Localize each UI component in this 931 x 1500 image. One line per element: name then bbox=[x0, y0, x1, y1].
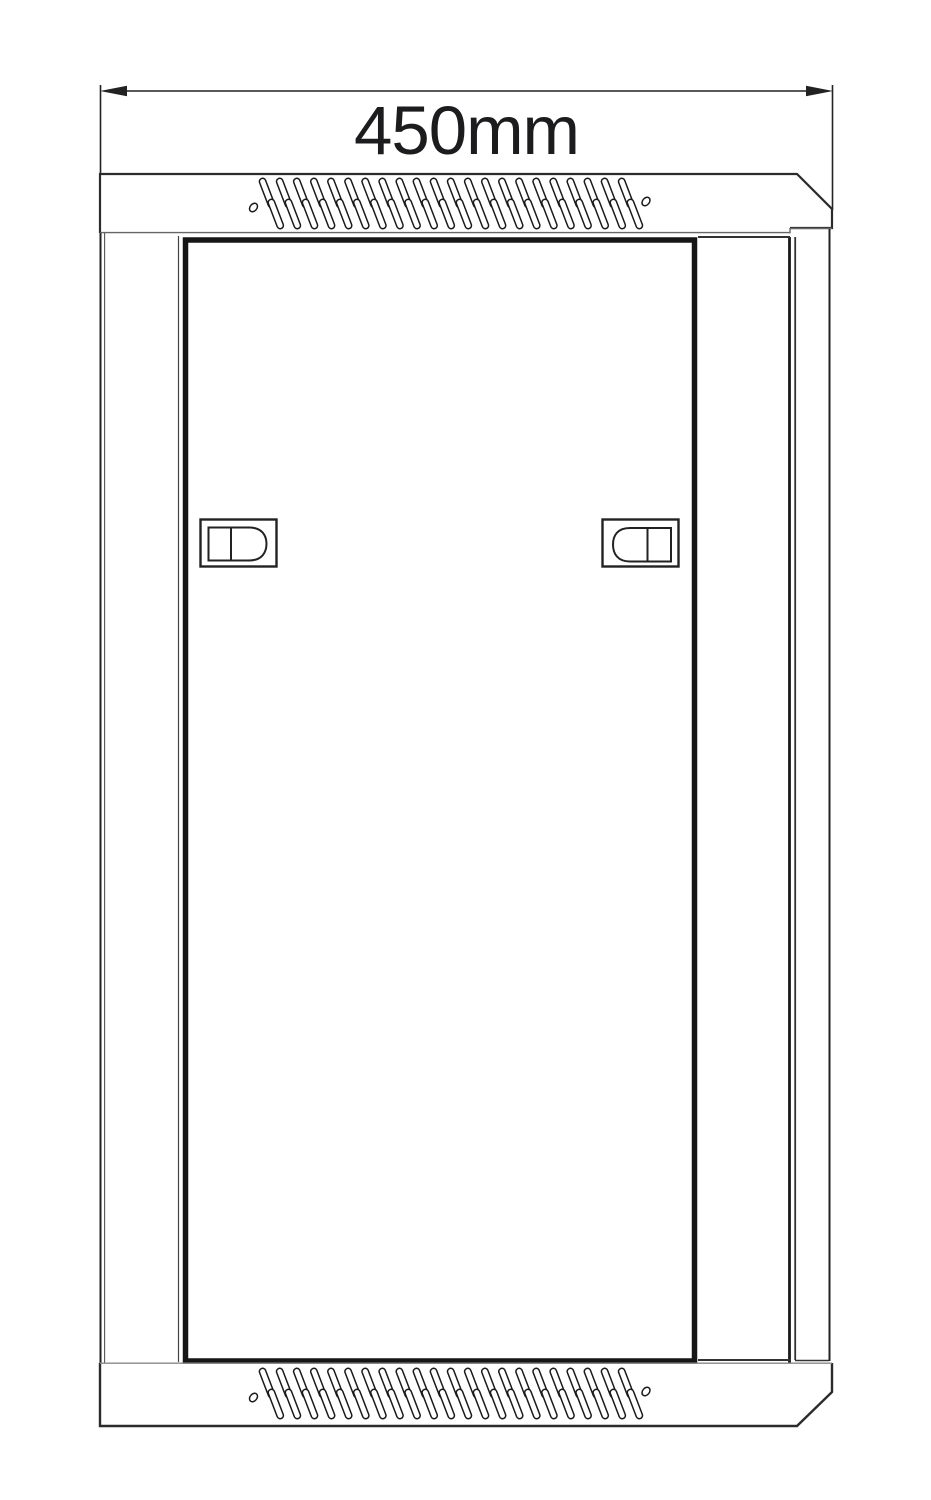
left-latch bbox=[201, 520, 277, 567]
bottom-vent-slots bbox=[248, 1367, 652, 1419]
technical-drawing: 450mm bbox=[0, 0, 931, 1500]
door-panel bbox=[179, 236, 695, 1362]
arrow-left-icon bbox=[100, 86, 127, 96]
arrow-right-icon bbox=[806, 86, 833, 96]
right-latch bbox=[603, 520, 679, 567]
cabinet-line-art bbox=[0, 0, 931, 1500]
